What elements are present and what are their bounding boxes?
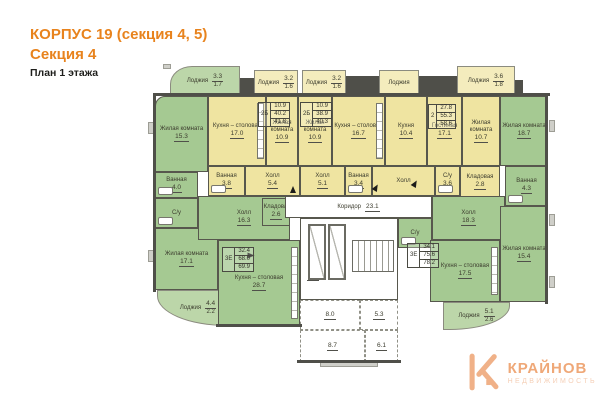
spec-apt-b-area-1: 38.9 bbox=[313, 111, 331, 119]
room-bath-b: Ванная3.4 bbox=[345, 166, 372, 196]
stairs-icon bbox=[352, 240, 394, 272]
lodge-c-label: Лоджия bbox=[388, 80, 409, 87]
room-hall-right-area: 18.3 bbox=[461, 217, 476, 226]
vestibule-1-values: 8.0 bbox=[324, 311, 335, 320]
room-hall-c-label: Холл bbox=[396, 178, 410, 185]
room-kitchen-left-label: Кухня – столовая bbox=[235, 275, 283, 282]
spec-apt-right-areas: 34.175.678.2 bbox=[420, 244, 438, 267]
corridor-area: 23.1 bbox=[365, 203, 380, 212]
room-bedroom-a-values: 10.9 bbox=[275, 134, 290, 143]
room-living-bottom-right-values: 15.4 bbox=[517, 253, 532, 262]
vestibule-1-area: 8.0 bbox=[324, 311, 335, 320]
wall-segment bbox=[419, 76, 457, 95]
lodge-b-values: 3.21.6 bbox=[331, 75, 342, 91]
room-living-top-left-area: 15.3 bbox=[174, 133, 189, 142]
spec-apt-a-area-0: 10.9 bbox=[271, 103, 289, 111]
room-bedroom-c: Жилая комната10.7 bbox=[462, 96, 500, 166]
corridor: Коридор23.1 bbox=[285, 196, 432, 218]
spec-apt-a-areas: 10.940.241.8 bbox=[271, 103, 289, 126]
elevator-icon bbox=[308, 224, 326, 280]
room-hall-b-values: 5.1 bbox=[317, 180, 328, 189]
bath-fixture-icon bbox=[158, 187, 173, 195]
lodge-a-area-reduced: 1.6 bbox=[284, 84, 292, 91]
room-living-top-right-area: 18.7 bbox=[517, 130, 532, 139]
facade-stub bbox=[549, 120, 555, 132]
lodge-a-label: Лоджия bbox=[258, 80, 279, 87]
kitchen-appliances-icon bbox=[491, 247, 498, 295]
spec-apt-a-area-2: 41.8 bbox=[271, 119, 289, 126]
room-pantry-c: Кладовая2.8 bbox=[460, 166, 500, 198]
bath-fixture-icon bbox=[438, 185, 453, 193]
room-kitchen-a-label: Кухня – столовая bbox=[213, 123, 261, 130]
room-wc-left-label: С/у bbox=[172, 210, 181, 217]
bath-fixture-icon bbox=[508, 195, 523, 203]
room-bedroom-c-area: 10.7 bbox=[474, 134, 489, 143]
kitchen-appliances-icon bbox=[291, 247, 298, 319]
room-kitchen-left-values: 28.7 bbox=[252, 282, 267, 291]
spec-apt-b-area-0: 10.9 bbox=[313, 103, 331, 111]
facade-stub bbox=[163, 64, 171, 69]
vestibule-2: 5.3 bbox=[360, 300, 398, 330]
logo-house-k-icon bbox=[467, 351, 501, 393]
room-bath-left-label: Ванная bbox=[166, 177, 187, 184]
room-pantry-c-area: 2.8 bbox=[474, 181, 485, 190]
lodge-b-label: Лоджия bbox=[306, 80, 327, 87]
room-living-top-right-values: 18.7 bbox=[517, 130, 532, 139]
facade-stub bbox=[549, 214, 555, 226]
room-kitchen-left-area: 28.7 bbox=[252, 282, 267, 291]
lodge-bottom-left-area-reduced: 2.2 bbox=[206, 309, 214, 316]
spec-apt-left: 3Е32.468.069.9 bbox=[222, 247, 254, 272]
room-kitchen-right-values: 17.5 bbox=[458, 270, 473, 279]
lodge-top-left-label: Лоджия bbox=[187, 78, 208, 85]
spec-apt-c-type-code: 2 bbox=[429, 105, 437, 128]
lodge-bottom-left-label: Лоджия bbox=[180, 305, 201, 312]
spec-apt-left-area-1: 68.0 bbox=[235, 256, 253, 264]
vestibule-3-values: 8.7 bbox=[327, 342, 338, 351]
wall-segment bbox=[297, 360, 401, 363]
room-kitchen-right-area: 17.5 bbox=[458, 270, 473, 279]
room-bath-top-right: Ванная4.3 bbox=[505, 166, 548, 206]
lodge-top-left: Лоджия3.31.7 bbox=[170, 66, 240, 96]
room-living-bottom-right-area: 15.4 bbox=[517, 253, 532, 262]
room-pantry-left-area: 2.6 bbox=[270, 211, 281, 220]
lodge-right: Лоджия5.12.6 bbox=[443, 302, 510, 330]
room-living-bottom-right: Жилая комната15.4 bbox=[500, 206, 548, 302]
vestibule-3-area: 8.7 bbox=[327, 342, 338, 351]
spec-apt-a-type-code: 2Б bbox=[259, 103, 271, 126]
spec-apt-left-areas: 32.468.069.9 bbox=[235, 248, 253, 271]
room-hall-left-values: 16.3 bbox=[237, 217, 252, 226]
spec-apt-a: 2Б10.940.241.8 bbox=[258, 102, 290, 127]
wall-segment bbox=[515, 80, 523, 95]
room-living-top-left: Жилая комната15.3 bbox=[155, 96, 208, 172]
lodge-d: Лоджия3.61.8 bbox=[457, 66, 515, 96]
wall-segment bbox=[216, 324, 302, 327]
room-bedroom-a-area: 10.9 bbox=[275, 134, 290, 143]
room-living-top-right: Жилая комната18.7 bbox=[500, 96, 548, 166]
bath-fixture-icon bbox=[158, 217, 173, 225]
room-bath-top-right-values: 4.3 bbox=[521, 185, 532, 194]
spec-apt-left-area-0: 32.4 bbox=[235, 248, 253, 256]
wall-segment bbox=[346, 76, 379, 95]
room-living-c-values: 17.1 bbox=[437, 130, 452, 139]
room-bath-left: Ванная4.0 bbox=[155, 172, 198, 198]
wall-segment bbox=[153, 93, 156, 292]
lodge-a-area: 3.2 bbox=[283, 75, 294, 84]
spec-apt-b-type-code: 2Б bbox=[301, 103, 313, 126]
room-hall-left-label: Холл bbox=[237, 210, 251, 217]
room-kitchen-c-area: 10.4 bbox=[399, 130, 414, 139]
brand-logo: КРАЙНОВ НЕДВИЖИМОСТЬ bbox=[467, 351, 597, 393]
spec-apt-right-area-2: 78.2 bbox=[420, 260, 438, 267]
room-bedroom-c-label: Жилая комната bbox=[464, 120, 498, 134]
spec-apt-a-area-1: 40.2 bbox=[271, 111, 289, 119]
lodge-top-left-values: 3.31.7 bbox=[212, 73, 223, 89]
lodge-a-values: 3.21.6 bbox=[283, 75, 294, 91]
room-bath-a-label: Ванная bbox=[216, 173, 237, 180]
room-wc-right-label: С/у bbox=[411, 230, 420, 237]
corridor-label: Коридор bbox=[337, 204, 361, 211]
room-hall-right: Холл18.3 bbox=[432, 196, 505, 240]
room-wc-left: С/у bbox=[155, 198, 198, 228]
lodge-bottom-left-area: 4.4 bbox=[205, 300, 216, 309]
kitchen-appliances-icon bbox=[376, 103, 383, 159]
lodge-b-area-reduced: 1.6 bbox=[332, 84, 340, 91]
room-living-bottom-left-label: Жилая комната bbox=[165, 251, 208, 258]
spec-apt-right: 3Е34.175.678.2 bbox=[407, 243, 439, 268]
room-kitchen-a-area: 17.0 bbox=[230, 130, 245, 139]
spec-apt-right-type-code: 3Е bbox=[408, 244, 420, 267]
vestibule-1: 8.0 bbox=[300, 300, 360, 330]
room-kitchen-c-label: Кухня bbox=[398, 123, 414, 130]
room-pantry-left-values: 2.6 bbox=[270, 211, 281, 220]
room-wc-c: С/у3.6 bbox=[435, 166, 460, 196]
room-bath-b-label: Ванная bbox=[348, 173, 369, 180]
lodge-d-area: 3.6 bbox=[493, 73, 504, 82]
room-kitchen-b-area: 16.7 bbox=[351, 130, 366, 139]
corridor-values: 23.1 bbox=[365, 203, 380, 212]
room-hall-right-values: 18.3 bbox=[461, 217, 476, 226]
lodge-right-values: 5.12.6 bbox=[484, 308, 495, 324]
room-living-top-left-values: 15.3 bbox=[174, 133, 189, 142]
spec-apt-c-area-1: 55.3 bbox=[437, 113, 455, 121]
room-living-top-right-label: Жилая комната bbox=[502, 123, 545, 130]
room-hall-a-label: Холл bbox=[265, 173, 279, 180]
vestibule-2-area: 5.3 bbox=[373, 311, 384, 320]
spec-apt-b-area-2: 40.3 bbox=[313, 119, 331, 126]
lodge-b-area: 3.2 bbox=[331, 75, 342, 84]
room-hall-right-label: Холл bbox=[461, 210, 475, 217]
room-wc-c-label: С/у bbox=[443, 173, 452, 180]
lodge-d-values: 3.61.8 bbox=[493, 73, 504, 89]
wall-segment bbox=[545, 93, 548, 304]
vestibule-4-values: 6.1 bbox=[376, 342, 387, 351]
room-kitchen-c-values: 10.4 bbox=[399, 130, 414, 139]
spec-apt-left-type-code: 3Е bbox=[223, 248, 235, 271]
room-kitchen-right-label: Кухня – столовая bbox=[441, 263, 489, 270]
room-kitchen-right: Кухня – столовая17.5 bbox=[430, 240, 500, 302]
room-living-bottom-left-area: 17.1 bbox=[179, 258, 194, 267]
spec-apt-right-area-1: 75.6 bbox=[420, 252, 438, 260]
wall-segment bbox=[240, 78, 254, 95]
room-hall-c: Холл bbox=[372, 166, 435, 196]
logo-brand-text: КРАЙНОВ bbox=[508, 360, 597, 377]
room-living-bottom-left-values: 17.1 bbox=[179, 258, 194, 267]
vestibule-4: 6.1 bbox=[365, 330, 398, 362]
spec-apt-c-area-0: 27.8 bbox=[437, 105, 455, 113]
room-bedroom-b-area: 10.9 bbox=[308, 134, 323, 143]
room-hall-a-values: 5.4 bbox=[267, 180, 278, 189]
room-bath-a: Ванная3.8 bbox=[208, 166, 245, 196]
vestibule-2-values: 5.3 bbox=[373, 311, 384, 320]
floor-plan: Лоджия3.31.7Лоджия3.21.6Лоджия3.21.6Лодж… bbox=[0, 0, 605, 403]
room-living-top-left-label: Жилая комната bbox=[160, 126, 203, 133]
room-pantry-c-label: Кладовая bbox=[467, 174, 494, 181]
room-pantry-c-values: 2.8 bbox=[474, 181, 485, 190]
bath-fixture-icon bbox=[348, 185, 363, 193]
room-bath-top-right-label: Ванная bbox=[516, 178, 537, 185]
room-hall-b-label: Холл bbox=[315, 173, 329, 180]
lodge-d-area-reduced: 1.8 bbox=[494, 82, 502, 89]
room-living-c-area: 17.1 bbox=[437, 130, 452, 139]
lodge-right-label: Лоджия bbox=[458, 313, 479, 320]
room-kitchen-a-values: 17.0 bbox=[230, 130, 245, 139]
spec-apt-left-area-2: 69.9 bbox=[235, 264, 253, 271]
room-kitchen-b: Кухня – столовая16.7 bbox=[332, 96, 385, 166]
room-living-bottom-right-label: Жилая комната bbox=[502, 246, 545, 253]
spec-apt-c-area-2: 58.6 bbox=[437, 121, 455, 128]
lodge-right-area-reduced: 2.6 bbox=[485, 317, 493, 324]
room-hall-b: Холл5.1 bbox=[300, 166, 345, 196]
spec-apt-c: 227.855.358.6 bbox=[428, 104, 456, 129]
elevator-icon bbox=[328, 224, 346, 280]
facade-stub bbox=[549, 276, 555, 288]
room-hall-left-area: 16.3 bbox=[237, 217, 252, 226]
lodge-right-area: 5.1 bbox=[484, 308, 495, 317]
lodge-bottom-left-values: 4.42.2 bbox=[205, 300, 216, 316]
bath-fixture-icon bbox=[211, 185, 226, 193]
spec-apt-c-areas: 27.855.358.6 bbox=[437, 105, 455, 128]
room-bedroom-c-values: 10.7 bbox=[474, 134, 489, 143]
spec-apt-right-area-0: 34.1 bbox=[420, 244, 438, 252]
room-kitchen-b-values: 16.7 bbox=[351, 130, 366, 139]
lodge-top-left-area-reduced: 1.7 bbox=[213, 82, 221, 89]
room-bedroom-b-values: 10.9 bbox=[308, 134, 323, 143]
vestibule-3: 8.7 bbox=[300, 330, 365, 362]
spec-apt-b-areas: 10.938.940.3 bbox=[313, 103, 331, 126]
vestibule-4-area: 6.1 bbox=[376, 342, 387, 351]
room-kitchen-c: Кухня10.4 bbox=[385, 96, 427, 166]
room-hall-b-area: 5.1 bbox=[317, 180, 328, 189]
room-bath-top-right-area: 4.3 bbox=[521, 185, 532, 194]
spec-apt-b: 2Б10.938.940.3 bbox=[300, 102, 332, 127]
lodge-top-left-area: 3.3 bbox=[212, 73, 223, 82]
arrow-icon bbox=[290, 186, 296, 193]
room-hall-a-area: 5.4 bbox=[267, 180, 278, 189]
logo-sub-text: НЕДВИЖИМОСТЬ bbox=[508, 378, 597, 385]
lodge-d-label: Лоджия bbox=[468, 78, 489, 85]
